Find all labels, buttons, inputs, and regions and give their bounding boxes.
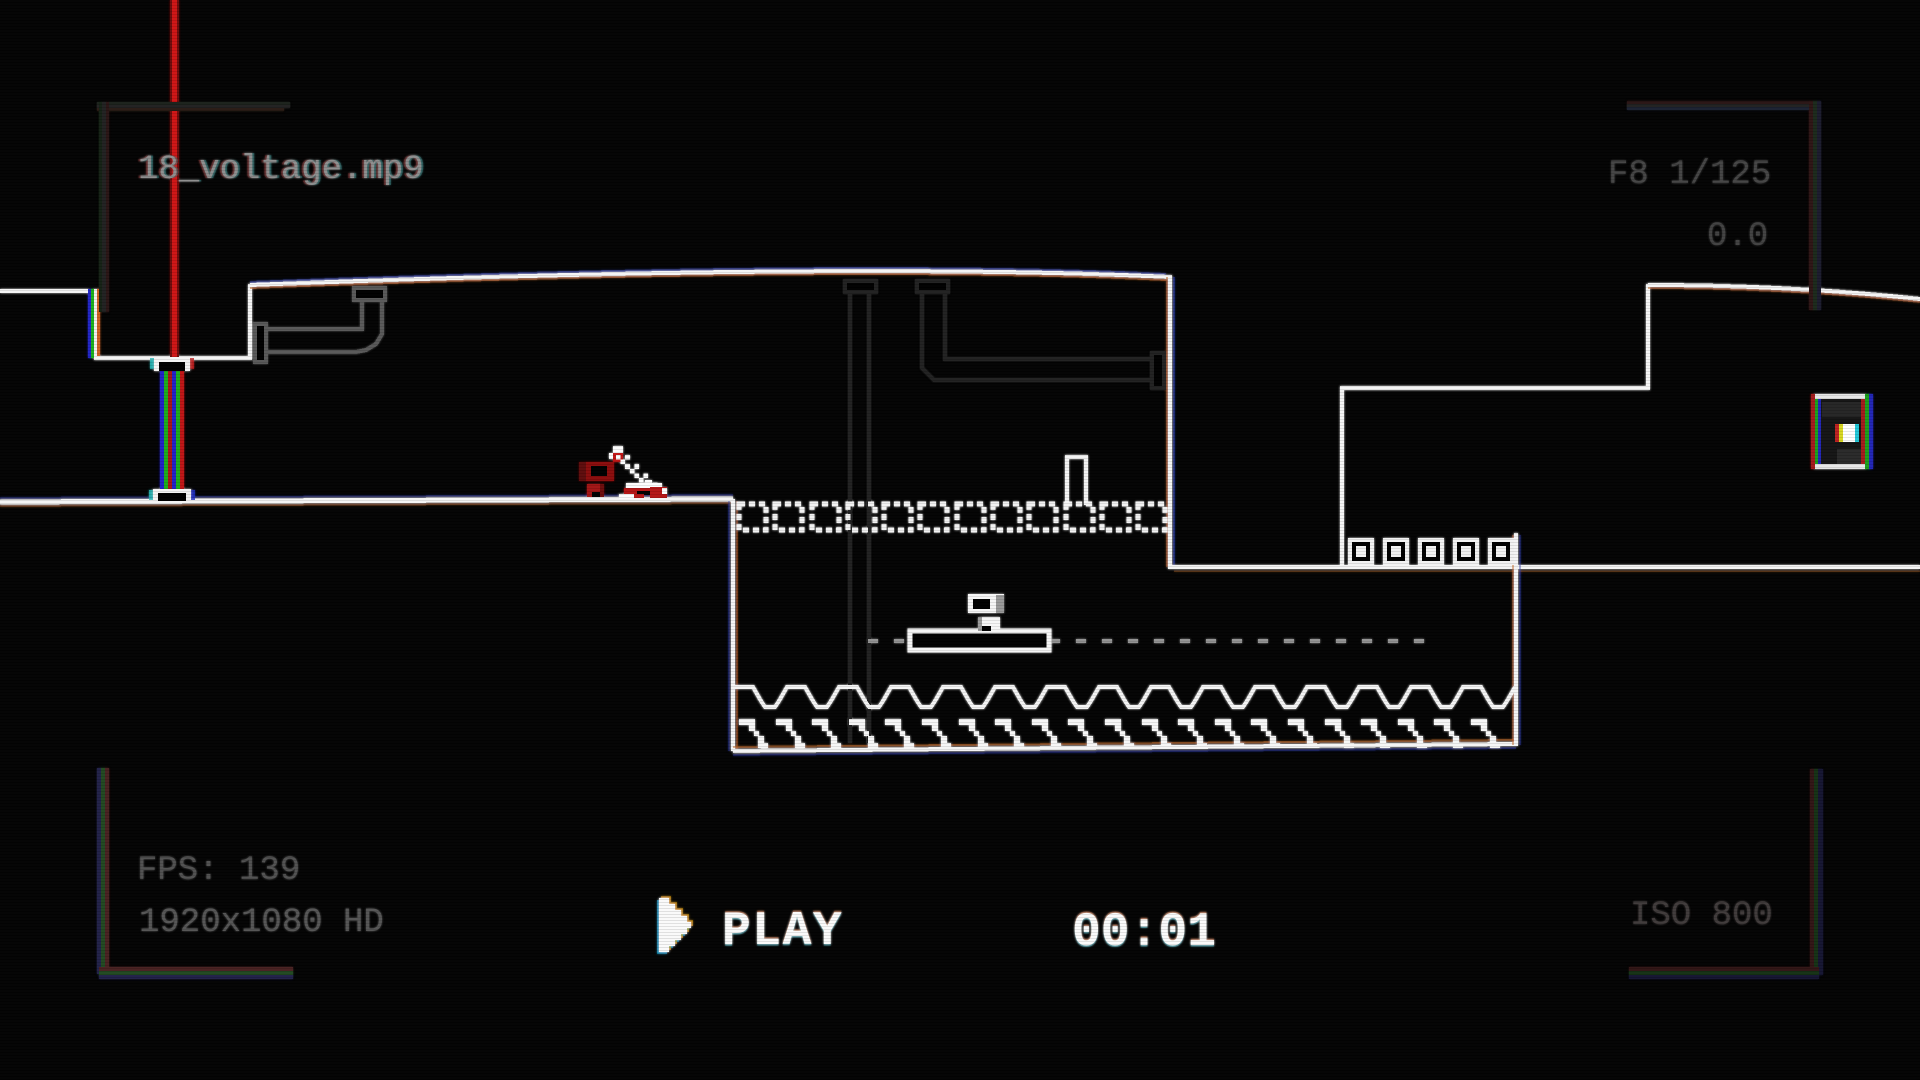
svg-text:PLAY: PLAY — [722, 905, 843, 959]
svg-text:ISO 800: ISO 800 — [1630, 897, 1773, 935]
svg-text:FPS: 139: FPS: 139 — [137, 852, 300, 890]
svg-text:18_voltage.mp9: 18_voltage.mp9 — [138, 151, 424, 189]
svg-text:F8 1/125: F8 1/125 — [1608, 156, 1771, 194]
svg-text:0.0: 0.0 — [1707, 218, 1768, 256]
svg-text:1920x1080 HD: 1920x1080 HD — [139, 904, 384, 942]
svg-text:00:01: 00:01 — [1072, 906, 1216, 960]
